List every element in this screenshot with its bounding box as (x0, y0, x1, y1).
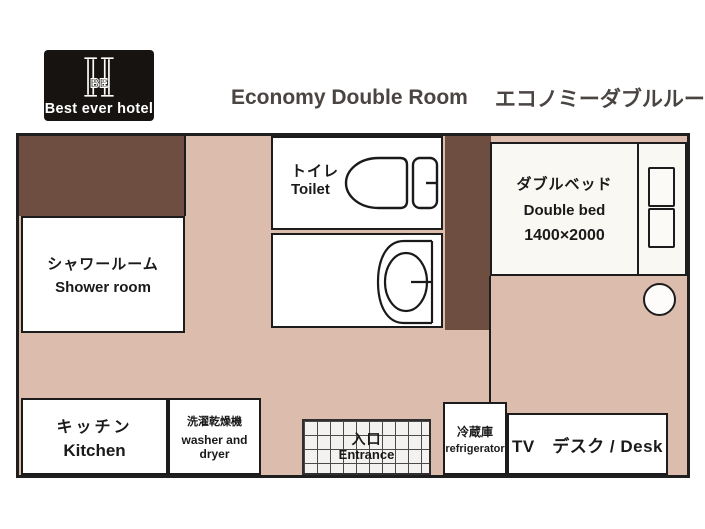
entrance-area: 入口 Entrance (302, 419, 431, 475)
tv-desk-area: TV デスク / Desk (507, 413, 668, 475)
tv-desk-label: TV デスク / Desk (512, 432, 663, 457)
page-title: Economy Double Room エコノミーダブルルーム 17 m2 (231, 83, 705, 113)
toilet-label-en: Toilet (291, 181, 339, 198)
refrigerator-label-en: refrigerator (445, 443, 504, 455)
toilet-label: トイレ Toilet (291, 160, 339, 198)
shower-label-en: Shower room (55, 279, 151, 296)
entrance-label-en: Entrance (339, 447, 395, 462)
washer-dryer-area: 洗濯乾燥機 washer and dryer (168, 398, 261, 475)
pillow-icon (648, 208, 675, 248)
entrance-label-ja: 入口 (352, 432, 382, 447)
refrigerator-label-ja: 冷蔵庫 (457, 423, 493, 440)
wall-line (489, 276, 491, 402)
refrigerator-area: 冷蔵庫 refrigerator (443, 402, 507, 475)
hotel-logo: BE Best ever hotel (44, 50, 154, 121)
toilet-room: トイレ Toilet (271, 136, 443, 230)
wall-block-top-left (19, 136, 186, 216)
bed-label: ダブルベッド Double bed 1400×2000 (492, 144, 637, 274)
brand-name: Best ever hotel (45, 101, 153, 117)
kitchen-label-en: Kitchen (63, 441, 125, 461)
room-title-ja: エコノミーダブルルーム (495, 83, 705, 113)
wall-block-center (445, 136, 491, 330)
bed-label-en: Double bed (524, 202, 606, 219)
room-title-en: Economy Double Room (231, 86, 468, 110)
washer-label-ja: 洗濯乾燥機 (187, 413, 242, 429)
toilet-icon (341, 156, 439, 210)
monogram-letters: BE (90, 76, 107, 90)
bed-label-ja: ダブルベッド (516, 173, 612, 194)
washer-label-en: washer and dryer (170, 433, 259, 461)
bed-size: 1400×2000 (524, 227, 605, 245)
washbasin-room (271, 233, 443, 328)
hotel-monogram-icon: BE (76, 55, 122, 99)
shower-label-ja: シャワールーム (47, 253, 159, 274)
sink-icon (374, 238, 440, 326)
stool-icon (643, 283, 676, 316)
bed-area: ダブルベッド Double bed 1400×2000 (490, 142, 687, 276)
kitchen-area: キッチン Kitchen (21, 398, 168, 475)
floor-plan: シャワールーム Shower room トイレ Toilet (16, 133, 690, 478)
toilet-label-ja: トイレ (291, 160, 339, 181)
screenshot-root: BE Best ever hotel Economy Double Room エ… (0, 0, 705, 529)
headboard-line (637, 144, 639, 274)
kitchen-label-ja: キッチン (56, 413, 132, 437)
pillow-icon (648, 167, 675, 207)
shower-room: シャワールーム Shower room (21, 216, 185, 333)
